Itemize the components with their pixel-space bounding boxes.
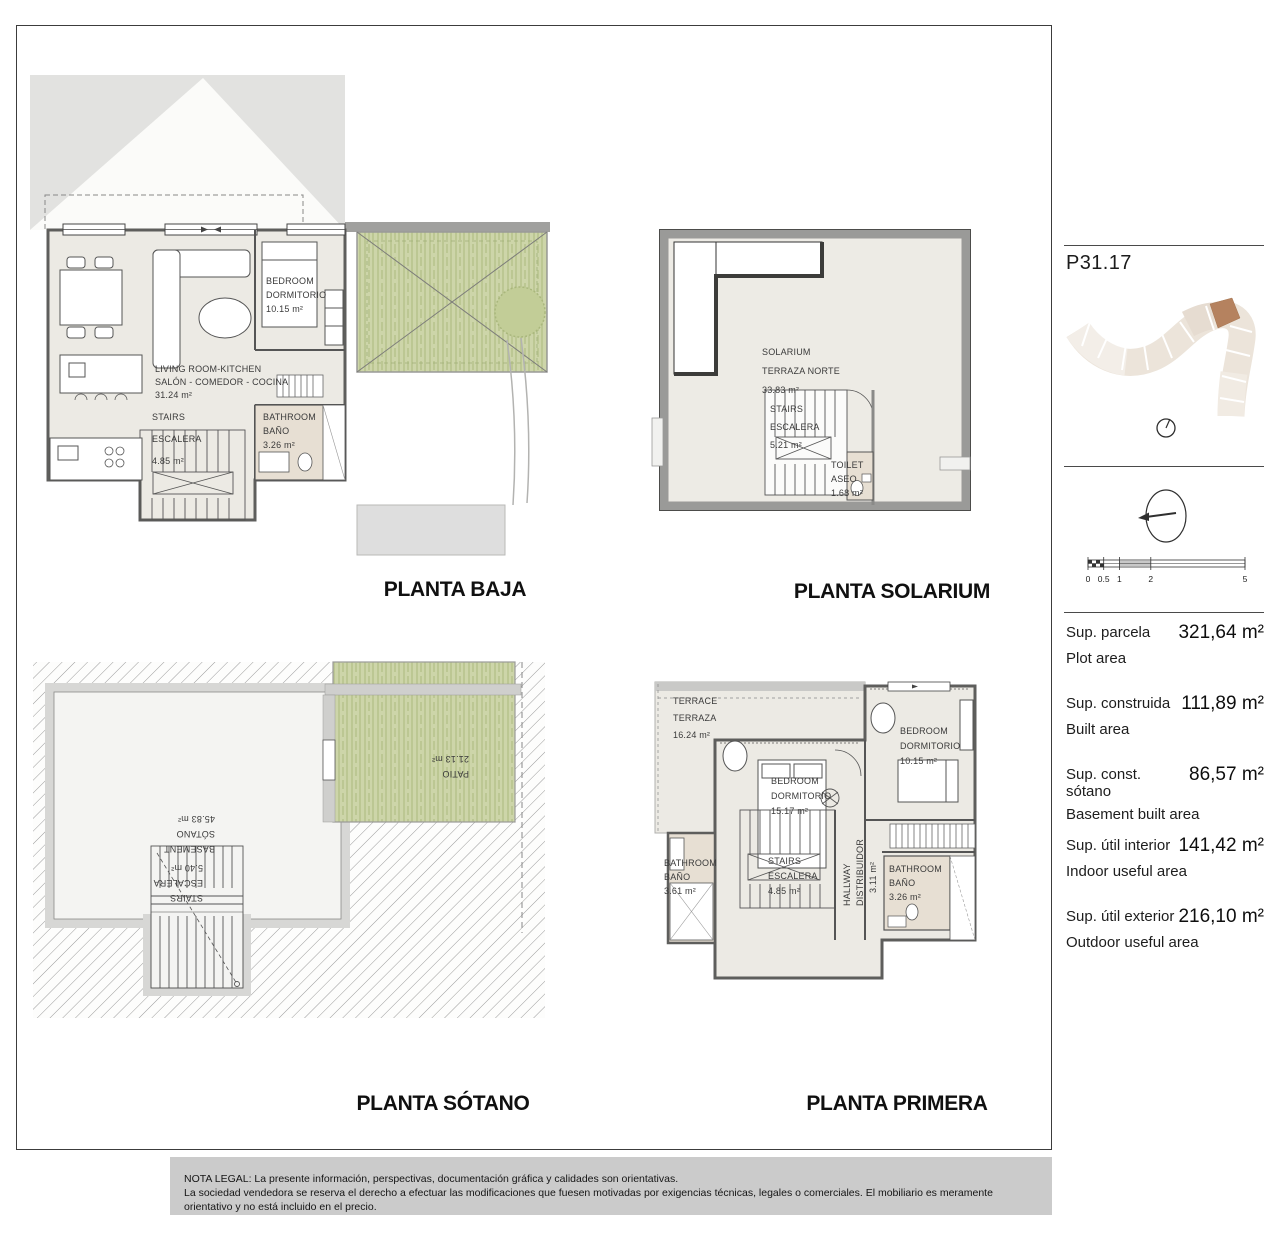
wardrobe-icon (890, 824, 975, 848)
scale-tick-1: 1 (1117, 574, 1122, 584)
room-label-bedroom2-area: 10.15 m² (900, 756, 937, 766)
unit-code: P31.17 (1066, 252, 1132, 275)
scale-tick-0: 0 (1086, 574, 1091, 584)
room-label-stairs-es: ESCALERA (153, 878, 203, 888)
area-row-indoor: Sup. útil interior 141,42 m² Indoor usef… (1066, 837, 1264, 886)
plan-primera-drawing: TERRACE TERRAZA 16.24 m² BEDROOM DORMITO… (650, 638, 990, 998)
room-label-patio-area: 21.13 m² (432, 754, 469, 764)
room-label-bedroom-main-en: BEDROOM (771, 776, 819, 786)
room-label-stairs-es: ESCALERA (770, 422, 820, 432)
scale-tick-2: 2 (1148, 574, 1153, 584)
room-label-stairs-en: STAIRS (152, 412, 185, 422)
room-label-bath-right-area: 3.26 m² (889, 892, 921, 902)
room-label-bath-right-es: BAÑO (889, 878, 915, 888)
room-label-basement-en: BASEMENT (164, 844, 215, 854)
room-label-toilet-area: 1.68 m² (831, 488, 863, 498)
legal-line-1: NOTA LEGAL: La presente información, per… (184, 1172, 1042, 1186)
room-label-toilet-es: ASEO (831, 474, 857, 484)
area-label-en: Plot area (1066, 650, 1264, 667)
area-row-basement: Sup. const. sótano 86,57 m² Basement bui… (1066, 766, 1264, 815)
area-table: Sup. parcela 321,64 m² Plot area Sup. co… (1066, 624, 1264, 979)
room-label-bath-en: BATHROOM (263, 412, 316, 422)
room-label-stairs-area: 5.40 m² (171, 863, 203, 873)
area-label-es: Sup. parcela (1066, 624, 1150, 641)
area-value: 141,42 m² (1178, 835, 1264, 857)
room-label-stairs-en: STAIRS (768, 856, 801, 866)
edge-tag (940, 457, 970, 470)
room-label-solarium-en: SOLARIUM (762, 347, 811, 357)
room-label-living-area: 31.24 m² (155, 390, 192, 400)
patio-garden (323, 662, 521, 822)
room-label-bath-right-en: BATHROOM (889, 864, 942, 874)
room-label-living-en: LIVING ROOM-KITCHEN (155, 364, 261, 374)
plan-title-sotano: PLANTA SÓTANO (313, 1092, 573, 1116)
kitchen-island-icon (60, 355, 142, 400)
room-label-stairs-es: ESCALERA (152, 434, 202, 444)
room-label-terrace-en: TERRACE (673, 696, 717, 706)
area-value: 111,89 m² (1181, 693, 1264, 715)
area-row-plot: Sup. parcela 321,64 m² Plot area (1066, 624, 1264, 673)
area-label-en: Indoor useful area (1066, 863, 1264, 880)
room-label-solarium-es: TERRAZA NORTE (762, 366, 840, 376)
legal-note: NOTA LEGAL: La presente información, per… (170, 1157, 1052, 1215)
room-label-terrace-es: TERRAZA (673, 713, 716, 723)
room-label-stairs-area: 5.21 m² (770, 440, 802, 450)
room-label-terrace-area: 16.24 m² (673, 730, 710, 740)
plan-title-primera: PLANTA PRIMERA (767, 1092, 1027, 1116)
room-label-hallway-es: DISTRIBUIDOR (855, 839, 865, 906)
area-label-es: Sup. útil interior (1066, 837, 1170, 854)
scale-tick-5: 5 (1243, 574, 1248, 584)
room-label-hallway-en: HALLWAY (842, 863, 852, 906)
area-label-es: Sup. construida (1066, 695, 1170, 712)
kitchen-counter-icon (50, 438, 142, 480)
room-label-stairs-es: ESCALERA (768, 871, 818, 881)
plan-solarium-drawing: SOLARIUM TERRAZA NORTE 33.83 m² STAIRS E… (650, 222, 990, 522)
scale-tick-05: 0.5 (1098, 574, 1110, 584)
plan-title-baja: PLANTA BAJA (325, 578, 585, 602)
site-key-plan (1064, 278, 1264, 448)
room-label-stairs-en: STAIRS (170, 893, 203, 903)
garden-pergola (345, 222, 550, 372)
area-row-outdoor: Sup. útil exterior 216,10 m² Outdoor use… (1066, 908, 1264, 957)
floorplan-sheet: LIVING ROOM-KITCHEN SALÓN - COMEDOR - CO… (0, 0, 1280, 1246)
room-label-bedroom2-en: BEDROOM (900, 726, 948, 736)
edge-tag (652, 418, 663, 466)
area-label-es: Sup. const. sótano (1066, 766, 1189, 800)
plan-baja-drawing: LIVING ROOM-KITCHEN SALÓN - COMEDOR - CO… (25, 60, 560, 565)
sidebar-divider (1064, 466, 1264, 467)
room-label-basement-es: SÓTANO (176, 829, 215, 839)
room-label-hallway-area: 3.11 m² (868, 862, 878, 893)
room-label-bedroom2-es: DORMITORIO (900, 741, 960, 751)
room-label-patio-en: PATIO (442, 769, 469, 779)
room-label-bedroom-en: BEDROOM (266, 276, 314, 286)
room-label-basement-area: 45.83 m² (178, 814, 215, 824)
room-label-bath-left-es: BAÑO (664, 872, 690, 882)
room-label-bath-area: 3.26 m² (263, 440, 295, 450)
north-icon (1157, 419, 1175, 437)
area-value: 86,57 m² (1189, 764, 1264, 786)
room-label-solarium-area: 33.83 m² (762, 385, 799, 395)
room-label-bedroom-area: 10.15 m² (266, 304, 303, 314)
room-label-stairs-area: 4.85 m² (768, 886, 800, 896)
room-label-bedroom-es: DORMITORIO (266, 290, 326, 300)
room-label-bath-es: BAÑO (263, 426, 289, 436)
area-value: 216,10 m² (1178, 906, 1264, 928)
area-label-en: Basement built area (1066, 806, 1264, 823)
room-label-stairs-en: STAIRS (770, 404, 803, 414)
room-label-bedroom-main-area: 15.17 m² (771, 806, 808, 816)
area-label-es: Sup. útil exterior (1066, 908, 1174, 925)
tree-icon (495, 287, 545, 337)
sidebar-divider (1064, 612, 1264, 613)
scale-bar: 0 0.5 1 2 5 (1064, 552, 1264, 588)
area-label-en: Built area (1066, 721, 1264, 738)
compass-icon (1064, 470, 1264, 560)
sidebar-divider (1064, 245, 1264, 246)
roof-plan (30, 75, 345, 230)
legal-line-2: La sociedad vendedora se reserva el dere… (184, 1186, 1042, 1214)
plan-title-solarium: PLANTA SOLARIUM (762, 580, 1022, 604)
area-row-built: Sup. construida 111,89 m² Built area (1066, 695, 1264, 744)
room-label-bedroom-main-es: DORMITORIO (771, 791, 831, 801)
room-label-bath-left-en: BATHROOM (664, 858, 717, 868)
room-label-stairs-area: 4.85 m² (152, 456, 184, 466)
area-value: 321,64 m² (1178, 622, 1264, 644)
plan-sotano-drawing: BASEMENT SÓTANO 45.83 m² STAIRS ESCALERA… (25, 648, 570, 1038)
window-icon (63, 224, 345, 235)
room-label-living-es: SALÓN - COMEDOR - COCINA (155, 377, 288, 387)
room-label-toilet-en: TOILET (831, 460, 864, 470)
room-label-bath-left-area: 3.61 m² (664, 886, 696, 896)
area-label-en: Outdoor useful area (1066, 934, 1264, 951)
